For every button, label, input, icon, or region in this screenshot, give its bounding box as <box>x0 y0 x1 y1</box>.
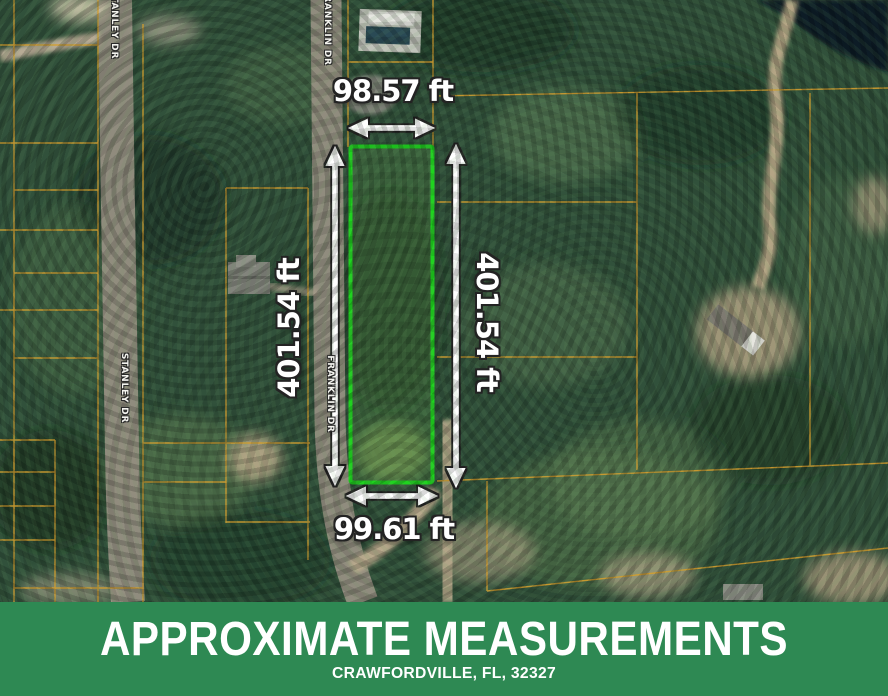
driveway-topleft <box>0 38 100 56</box>
width-arrow-top <box>348 119 435 138</box>
measurement-top-width: 98.57 ft <box>333 74 453 108</box>
measurement-banner: APPROXIMATE MEASUREMENTS CRAWFORDVILLE, … <box>0 602 888 696</box>
west-house-building <box>228 255 270 294</box>
banner-subtitle: CRAWFORDVILLE, FL, 32327 <box>9 665 879 683</box>
highlighted-parcel-outline <box>351 147 433 483</box>
banner-title: APPROXIMATE MEASUREMENTS <box>53 615 834 665</box>
franklin-dr-label-mid: FRANKLIN DR <box>325 355 335 433</box>
franklin-dr-label-top: FRANKLIN DR <box>322 0 332 66</box>
satellite-map: STANLEY DR FRANKLIN DR STANLEY DR FRANKL… <box>0 0 888 602</box>
stanley-dr-label-top: STANLEY DR <box>109 0 119 59</box>
measurement-left-depth: 401.54 ft <box>272 258 306 397</box>
measurement-right-depth: 401.54 ft <box>470 252 504 391</box>
listing-graphic: STANLEY DR FRANKLIN DR STANLEY DR FRANKL… <box>0 0 888 696</box>
stanley-dr-road <box>115 0 128 602</box>
south-shed-building <box>723 584 763 600</box>
pool-house-building <box>358 9 421 53</box>
measurement-bottom-width: 99.61 ft <box>334 512 454 546</box>
stanley-dr-label-mid: STANLEY DR <box>119 353 129 423</box>
